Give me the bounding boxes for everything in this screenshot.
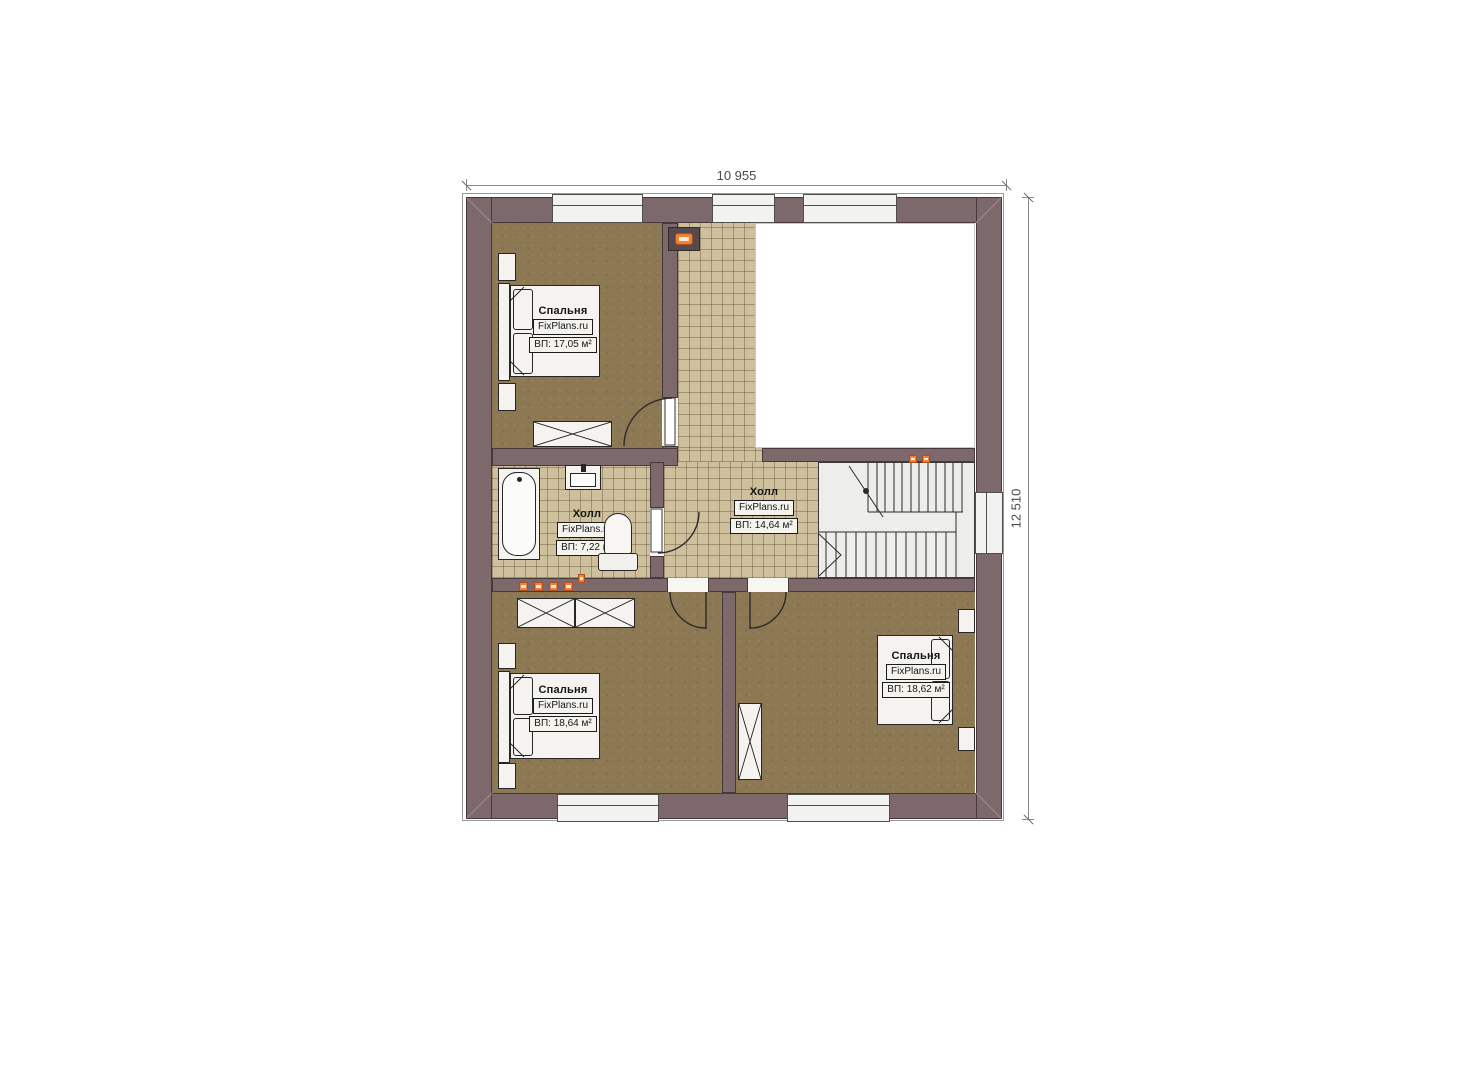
room-name: Спальня (892, 650, 941, 662)
window (803, 194, 897, 223)
window (787, 794, 890, 822)
nightstand (498, 643, 516, 669)
electric-panel-icon (668, 227, 700, 251)
door-opening (748, 578, 788, 592)
room-name: Спальня (539, 305, 588, 317)
nightstand (498, 383, 516, 411)
room-area: ВП: 18,62 м² (882, 682, 949, 698)
radiator-marker (578, 574, 585, 583)
dimension-top-line (466, 185, 1007, 186)
door-opening (668, 578, 708, 592)
dimension-right-label: 12 510 (1009, 469, 1024, 549)
bathtub-icon (498, 468, 540, 560)
radiator-marker (519, 582, 528, 591)
window (975, 492, 1003, 554)
radiator-marker (922, 455, 930, 463)
window (557, 794, 659, 822)
wardrobe-icon (738, 703, 762, 780)
room-name: Холл (750, 486, 778, 498)
wall-mid-bottom-center (708, 578, 748, 592)
room-label-bedroom-bottom-right: Спальня FixPlans.ru ВП: 18,62 м² (874, 650, 958, 698)
wall-empty-room-bottom (762, 448, 975, 462)
room-name: Холл (573, 508, 601, 520)
floor-hall-link (678, 448, 762, 462)
nightstand (498, 253, 516, 281)
dimension-right-line (1028, 197, 1029, 820)
room-area: ВП: 18,64 м² (529, 716, 596, 732)
room-label-hall-center: Холл FixPlans.ru ВП: 14,64 м² (727, 486, 801, 534)
nightstand (958, 609, 975, 633)
wardrobe-icon (517, 598, 575, 628)
floor-hallway-strip (678, 223, 755, 448)
headboard-shelf (498, 283, 510, 381)
room-label-bedroom-bottom-left: Спальня FixPlans.ru ВП: 18,64 м² (521, 684, 605, 732)
window (712, 194, 775, 223)
watermark: FixPlans.ru (886, 664, 946, 680)
radiator-marker (564, 582, 573, 591)
dimension-top-label: 10 955 (466, 168, 1007, 183)
nightstand (958, 727, 975, 751)
floor-plan: Спальня FixPlans.ru ВП: 17,05 м² Холл Fi… (466, 197, 1002, 819)
watermark: FixPlans.ru (533, 698, 593, 714)
room-area: ВП: 14,64 м² (730, 518, 797, 534)
stairs-area (818, 462, 975, 578)
floor-empty-room (755, 223, 975, 448)
wardrobe-icon (533, 421, 612, 447)
wall-outer-left (466, 197, 492, 819)
headboard-shelf (498, 671, 510, 763)
floor-plan-page: { "dimensions": { "width_label": "10 955… (0, 0, 1473, 1080)
wall-mid-bottom-right (788, 578, 975, 592)
room-area: ВП: 17,05 м² (529, 337, 596, 353)
door-opening (662, 398, 678, 446)
radiator-marker (909, 455, 917, 463)
door-opening (650, 508, 664, 556)
window (552, 194, 643, 223)
sink-icon (565, 465, 601, 490)
radiator-marker (534, 582, 543, 591)
watermark: FixPlans.ru (533, 319, 593, 335)
wall-bath-divider-upper (650, 462, 664, 508)
wall-outer-bottom (466, 793, 1002, 819)
radiator-marker (549, 582, 558, 591)
nightstand (498, 763, 516, 789)
wall-bedrooms-divider (722, 592, 736, 793)
toilet-icon (598, 513, 638, 573)
watermark: FixPlans.ru (734, 500, 794, 516)
wardrobe-icon (575, 598, 635, 628)
room-label-bedroom-top-left: Спальня FixPlans.ru ВП: 17,05 м² (521, 305, 605, 353)
wall-bath-divider-lower (650, 556, 664, 578)
room-name: Спальня (539, 684, 588, 696)
